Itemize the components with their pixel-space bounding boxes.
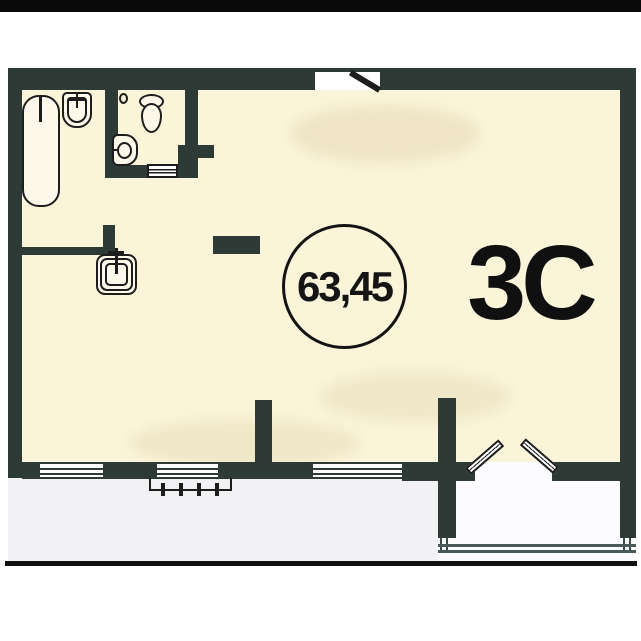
unit-label: 3C — [455, 226, 605, 341]
wc-bottom-wall — [105, 165, 148, 178]
wc-door-pivot — [119, 93, 128, 104]
balcony-door-opening — [475, 462, 552, 479]
sliding-door-icon — [147, 164, 178, 178]
balcony-railing-tick — [215, 483, 219, 496]
top-wall-right — [380, 72, 636, 90]
bath-sink-faucet — [69, 99, 85, 101]
plan-bottom-border — [5, 561, 637, 566]
balcony-glazing-line — [438, 544, 636, 547]
wc-right-wall — [185, 90, 198, 148]
area-label: 63,45 — [282, 224, 407, 349]
wc-stub-wall — [198, 145, 214, 158]
window-symbol — [40, 462, 103, 479]
balcony-glazing-line — [438, 550, 636, 553]
wc-corner-block — [178, 145, 198, 178]
bidet-spout — [112, 149, 119, 151]
balcony-railing-tick — [197, 483, 201, 496]
bathtub-faucet — [39, 97, 42, 122]
room-partition-stub-left — [255, 400, 272, 479]
bottom-wall-segment — [552, 462, 620, 481]
top-wall-left — [8, 72, 315, 90]
left-wall — [8, 72, 22, 478]
bottom-wall-segment — [22, 462, 40, 479]
room-partition-stub-right — [438, 398, 456, 538]
balcony-railing-tick — [179, 483, 183, 496]
photo-top-bar — [0, 0, 641, 12]
kitchen-sink-faucet — [108, 251, 124, 254]
right-wall — [620, 72, 636, 538]
window-symbol — [313, 462, 402, 479]
balcony-railing-tick — [161, 483, 165, 496]
window-symbol — [157, 462, 218, 479]
kitchen-duct-block — [213, 236, 260, 254]
floor-plan-screenshot: 63,45 3C — [0, 0, 641, 641]
bottom-wall-segment — [103, 462, 157, 479]
bidet-inner — [117, 142, 132, 159]
